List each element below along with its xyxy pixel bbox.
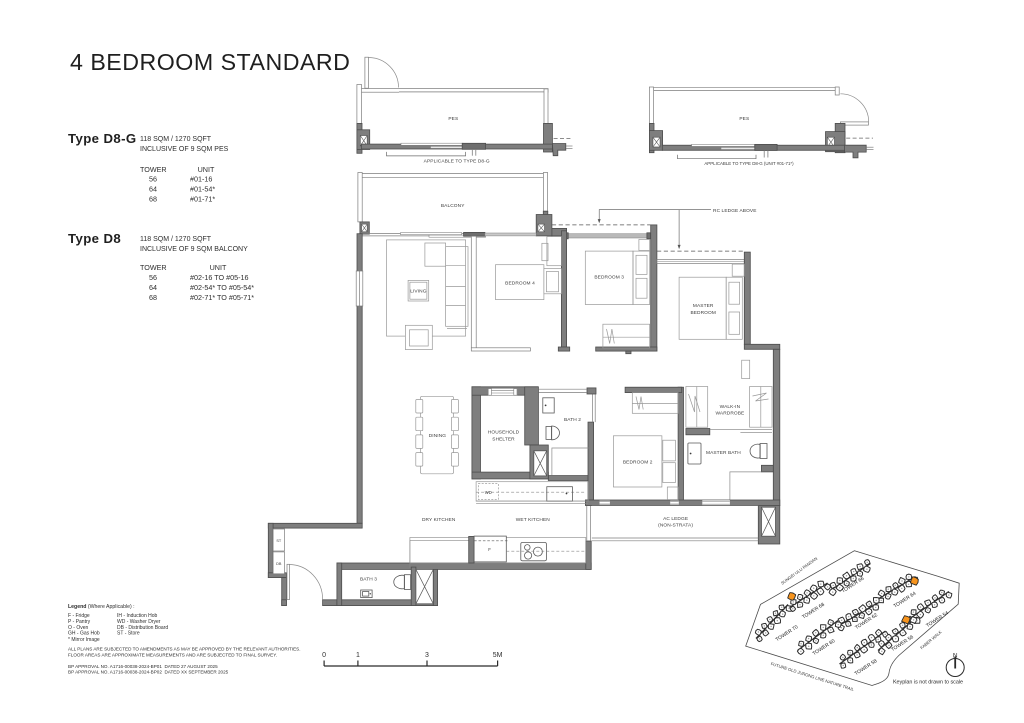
svg-text:GH - Gas Hob: GH - Gas Hob <box>68 631 100 637</box>
svg-text:* Mirror Image: * Mirror Image <box>68 637 100 643</box>
svg-text:BEDROOM: BEDROOM <box>690 310 716 316</box>
svg-text:1: 1 <box>356 652 360 659</box>
svg-text:DB: DB <box>276 562 282 566</box>
svg-text:ST: ST <box>276 539 282 543</box>
svg-text:BP APPROVAL NO. A1716-00038-20: BP APPROVAL NO. A1716-00038-2024-BP01 DA… <box>68 664 218 669</box>
svg-text:BP APPROVAL NO. A1716-00038-20: BP APPROVAL NO. A1716-00038-2024-BP02 DA… <box>68 670 229 675</box>
svg-text:BATH 3: BATH 3 <box>360 576 377 582</box>
svg-text:68: 68 <box>149 195 157 204</box>
svg-text:56: 56 <box>149 175 157 184</box>
svg-text:INCLUSIVE OF 9 SQM PES: INCLUSIVE OF 9 SQM PES <box>140 146 229 153</box>
svg-text:DRY KITCHEN: DRY KITCHEN <box>422 517 456 523</box>
svg-text:DINING: DINING <box>429 433 447 439</box>
svg-text:UNIT: UNIT <box>198 165 215 174</box>
svg-text:Type D8: Type D8 <box>68 231 121 246</box>
svg-text:64: 64 <box>149 185 157 194</box>
svg-text:BATH 2: BATH 2 <box>564 417 581 423</box>
svg-text:F: F <box>488 547 491 552</box>
svg-text:LIVING: LIVING <box>410 288 426 294</box>
svg-text:Type D8-G: Type D8-G <box>68 131 137 146</box>
svg-text:PES: PES <box>739 116 749 122</box>
svg-text:BEDROOM 3: BEDROOM 3 <box>594 275 624 281</box>
svg-text:HOUSEHOLD: HOUSEHOLD <box>488 430 520 436</box>
svg-text:ALL PLANS ARE SUBJECTED TO AME: ALL PLANS ARE SUBJECTED TO AMENDMENTS AS… <box>68 647 300 652</box>
svg-text:#01-54*: #01-54* <box>190 185 215 194</box>
svg-text:INCLUSIVE OF 9 SQM BALCONY: INCLUSIVE OF 9 SQM BALCONY <box>140 246 248 253</box>
svg-text:118 SQM / 1270 SQFT: 118 SQM / 1270 SQFT <box>140 236 212 243</box>
svg-text:WET KITCHEN: WET KITCHEN <box>516 517 550 523</box>
svg-text:Legend (Where Applicable) :: Legend (Where Applicable) : <box>68 604 135 610</box>
svg-text:#02-16 TO #05-16: #02-16 TO #05-16 <box>190 273 248 282</box>
svg-text:FLOOR AREAS ARE APPROXIMATE ME: FLOOR AREAS ARE APPROXIMATE MEASUREMENTS… <box>68 652 277 657</box>
svg-text:WD: WD <box>485 490 492 495</box>
svg-text:SHELTER: SHELTER <box>492 436 515 442</box>
svg-text:#01-71*: #01-71* <box>190 195 215 204</box>
svg-text:UNIT: UNIT <box>210 263 227 272</box>
svg-text:3: 3 <box>425 652 429 659</box>
svg-text:4 BEDROOM STANDARD: 4 BEDROOM STANDARD <box>70 49 350 75</box>
svg-text:68: 68 <box>149 293 157 302</box>
svg-text:RC LEDGE ABOVE: RC LEDGE ABOVE <box>713 208 757 214</box>
svg-text:MASTER: MASTER <box>693 303 714 309</box>
svg-text:WALK-IN: WALK-IN <box>720 404 741 410</box>
svg-text:APPLICABLE TO TYPE D8-G (UNIT: APPLICABLE TO TYPE D8-G (UNIT #01-71*) <box>704 161 794 166</box>
svg-text:0: 0 <box>322 652 326 659</box>
svg-text:AC LEDGE: AC LEDGE <box>663 516 688 522</box>
svg-text:(NON-STRATA): (NON-STRATA) <box>658 523 693 529</box>
svg-text:118 SQM / 1270 SQFT: 118 SQM / 1270 SQFT <box>140 136 212 143</box>
svg-text:BALCONY: BALCONY <box>441 203 465 209</box>
svg-text:APPLICABLE TO TYPE D8-G: APPLICABLE TO TYPE D8-G <box>424 159 490 165</box>
svg-text:WARDROBE: WARDROBE <box>715 411 744 417</box>
svg-text:TOWER: TOWER <box>140 165 167 174</box>
svg-text:MASTER BATH: MASTER BATH <box>706 450 741 456</box>
svg-text:#01-16: #01-16 <box>190 175 212 184</box>
svg-text:PES: PES <box>448 116 458 122</box>
svg-text:BEDROOM 2: BEDROOM 2 <box>623 460 653 466</box>
svg-text:BEDROOM 4: BEDROOM 4 <box>505 281 535 287</box>
svg-text:Keyplan is not drawn to scale: Keyplan is not drawn to scale <box>893 679 963 685</box>
svg-text:#02-54* TO #05-54*: #02-54* TO #05-54* <box>190 283 254 292</box>
svg-text:5M: 5M <box>493 652 503 659</box>
svg-text:TOWER: TOWER <box>140 263 167 272</box>
svg-text:ST - Store: ST - Store <box>117 631 140 637</box>
svg-text:N: N <box>953 653 958 660</box>
svg-text:64: 64 <box>149 283 157 292</box>
svg-text:56: 56 <box>149 273 157 282</box>
svg-text:#02-71* TO #05-71*: #02-71* TO #05-71* <box>190 293 254 302</box>
